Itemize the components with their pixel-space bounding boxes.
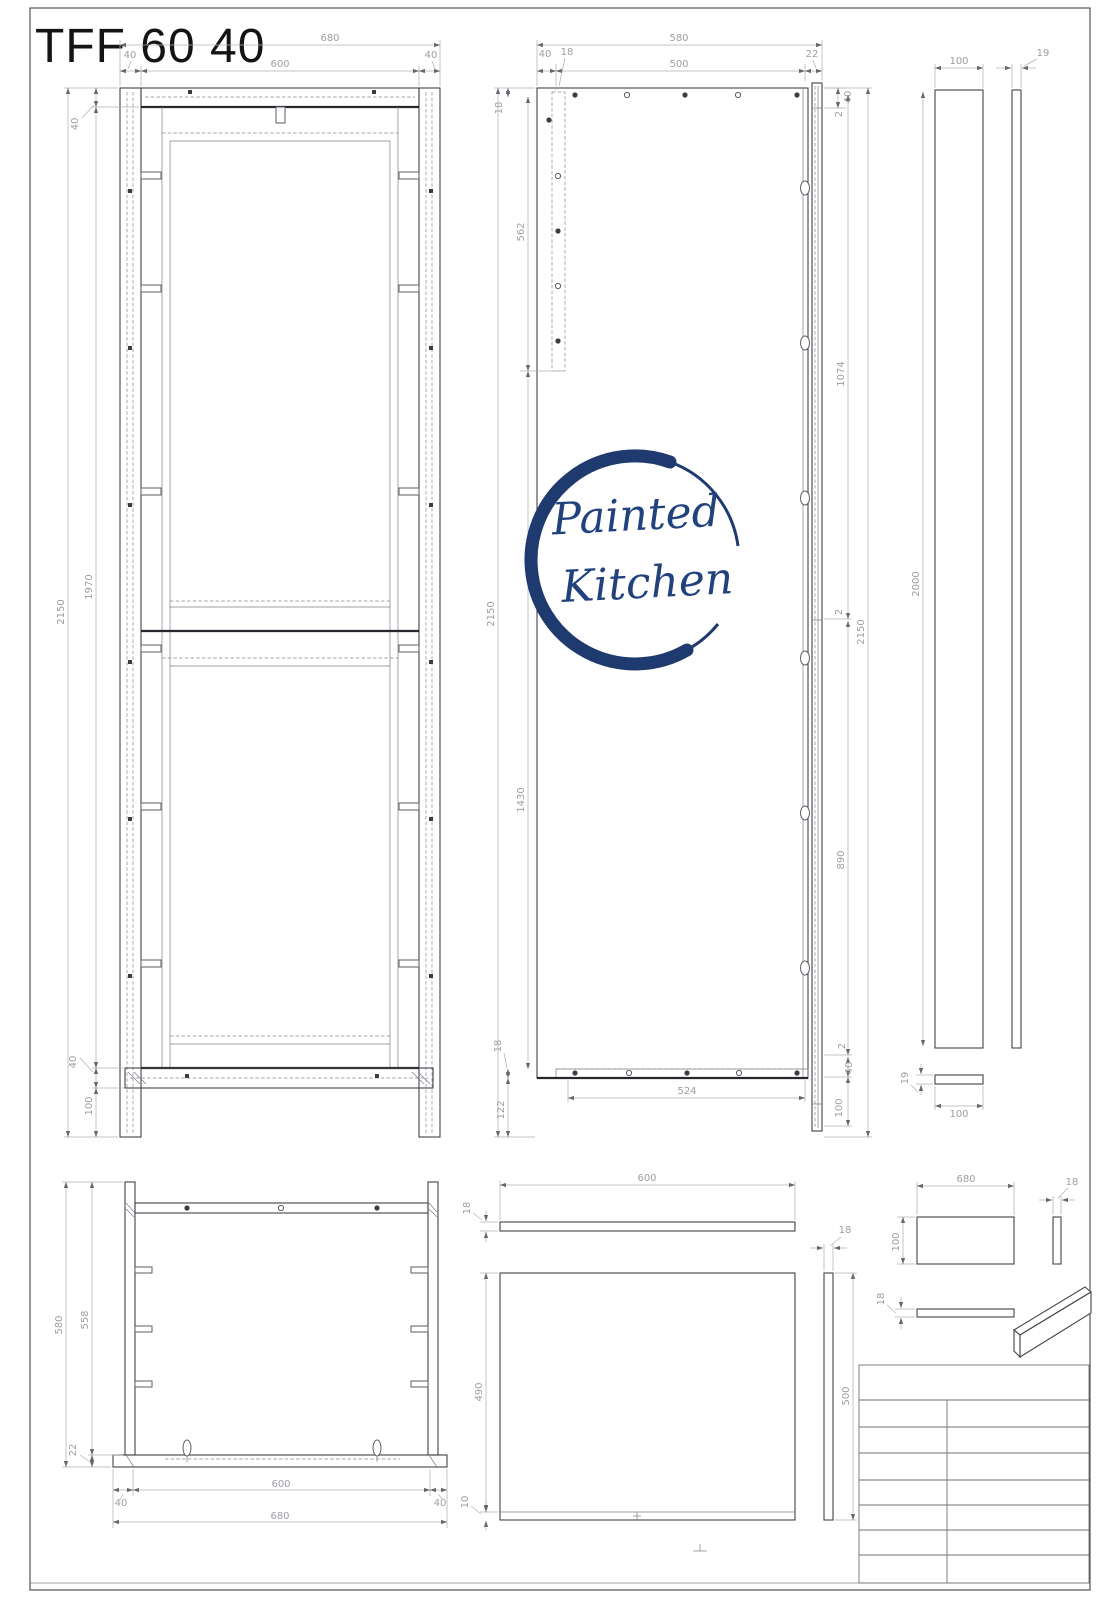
dim-label: 2150 (56, 599, 67, 624)
dim-label: 100 (891, 1232, 902, 1251)
dim-label: 40 (124, 50, 137, 61)
dowel-marks (128, 172, 433, 978)
dim-label: 680 (956, 1174, 975, 1185)
dim-label: 122 (496, 1100, 507, 1119)
dim-label: 2150 (856, 619, 867, 644)
logo-word-2: Kitchen (559, 553, 734, 613)
dim-label: 40 (844, 1062, 855, 1075)
dim-label: 2000 (911, 571, 922, 596)
title-block-table (859, 1365, 1089, 1583)
dim-label: 18 (839, 1225, 852, 1236)
dim-label: 40 (115, 1498, 128, 1509)
dim-label: 40 (68, 1056, 79, 1069)
dim-label: 18 (462, 1202, 473, 1215)
dim-label: 490 (474, 1382, 485, 1401)
dim-label: 18 (561, 47, 574, 58)
dim-label: 18 (494, 102, 505, 115)
dim-label: 22 (806, 49, 819, 60)
dim-label: 2 (834, 609, 845, 615)
dim-label: 1430 (516, 787, 527, 812)
view-front-elevation: 680 600 40 40 2150 1970 40 40 100 (56, 33, 440, 1137)
dim-label: 1074 (836, 361, 847, 386)
dim-label: 10 (460, 1496, 471, 1509)
drawing-sheet: TFF 60 40 (0, 0, 1117, 1600)
plan-dimensions: 580 558 22 40 600 40 680 (54, 1182, 447, 1528)
view-shelf-panel: 600 18 490 10 18 500 (460, 1173, 857, 1551)
dim-label: 558 (80, 1310, 91, 1329)
isometric-board (1014, 1287, 1091, 1357)
dim-label: 1970 (84, 574, 95, 599)
dim-label: 40 (539, 49, 552, 60)
dim-label: 100 (84, 1096, 95, 1115)
dim-label: 19 (900, 1072, 911, 1085)
logo-word-1: Painted (549, 486, 721, 546)
view-plan: 580 558 22 40 600 40 680 (54, 1182, 447, 1528)
dim-label: 890 (836, 850, 847, 869)
dim-label: 100 (949, 1109, 968, 1120)
dim-label: 500 (841, 1386, 852, 1405)
view-back-rail: 680 100 18 18 (876, 1174, 1091, 1357)
front-dimensions: 680 600 40 40 2150 1970 40 40 100 (56, 33, 440, 1137)
dim-label: 680 (270, 1511, 289, 1522)
dim-label: 18 (876, 1293, 887, 1306)
dim-label: 18 (493, 1040, 504, 1053)
dim-label: 18 (1066, 1177, 1079, 1188)
dim-label: 562 (516, 222, 527, 241)
dim-label: 100 (949, 56, 968, 67)
dim-label: 2 (837, 1043, 848, 1049)
dim-label: 22 (68, 1444, 79, 1457)
dim-label: 2150 (486, 601, 497, 626)
dim-label: 580 (669, 33, 688, 44)
dim-label: 19 (1037, 48, 1050, 59)
dim-label: 580 (54, 1315, 65, 1334)
dim-label: 600 (270, 59, 289, 70)
dim-label: 40 (425, 50, 438, 61)
dim-label: 600 (271, 1479, 290, 1490)
dim-label: 680 (320, 33, 339, 44)
dim-label: 100 (834, 1098, 845, 1117)
dim-label: 600 (637, 1173, 656, 1184)
dim-label: 40 (434, 1498, 447, 1509)
dim-label: 2 (834, 111, 845, 117)
dim-label: 40 (843, 91, 854, 104)
dim-label: 524 (677, 1086, 696, 1097)
dim-label: 40 (70, 118, 81, 131)
view-tall-panels: 100 2000 19 19 100 (900, 48, 1049, 1120)
dim-label: 500 (669, 59, 688, 70)
sheet-title: TFF 60 40 (35, 20, 265, 73)
